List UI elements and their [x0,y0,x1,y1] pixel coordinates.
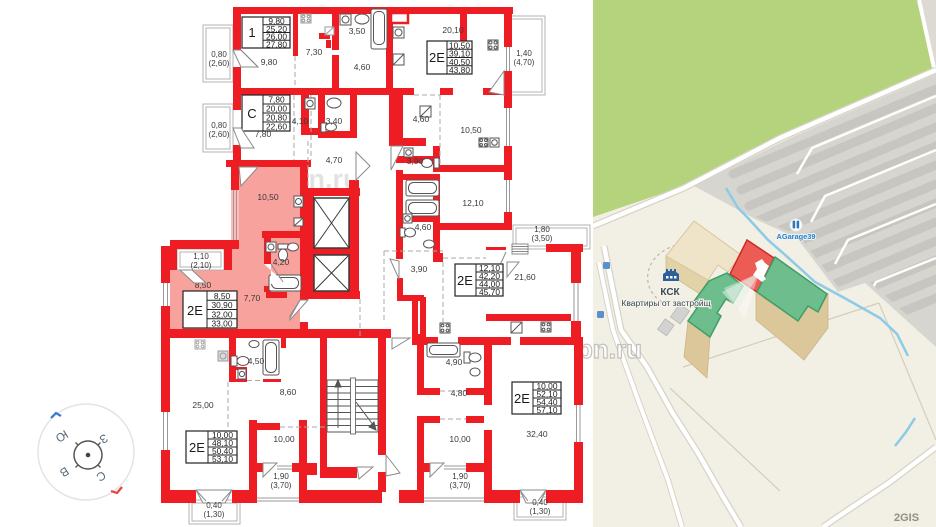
svg-text:4,90: 4,90 [446,357,463,367]
svg-text:7,70: 7,70 [244,293,261,303]
svg-text:43,80: 43,80 [449,65,470,75]
svg-text:10,50: 10,50 [460,125,482,135]
svg-text:2GIS: 2GIS [894,512,919,524]
svg-text:12,10: 12,10 [462,198,484,208]
svg-text:0,80: 0,80 [211,50,227,59]
svg-text:4,70: 4,70 [326,155,343,165]
svg-text:КСК: КСК [660,287,680,298]
svg-text:(3,50): (3,50) [532,234,553,243]
svg-text:2Е: 2Е [514,391,530,406]
svg-text:1,80: 1,80 [534,225,550,234]
svg-text:27,80: 27,80 [266,39,287,49]
svg-text:2Е: 2Е [189,440,205,455]
svg-text:4,10: 4,10 [292,116,309,126]
svg-text:(3,70): (3,70) [450,481,471,490]
svg-text:4,20: 4,20 [273,257,290,267]
svg-text:4,60: 4,60 [354,62,371,72]
svg-text:10,00: 10,00 [273,434,295,444]
svg-text:1,90: 1,90 [273,472,289,481]
svg-text:(1,30): (1,30) [204,510,225,519]
svg-text:3,90: 3,90 [411,264,428,274]
svg-text:53,10: 53,10 [212,454,233,464]
svg-text:0,80: 0,80 [211,121,227,130]
svg-text:10,50: 10,50 [257,192,279,202]
svg-text:25,00: 25,00 [192,400,214,410]
svg-text:7,30: 7,30 [306,47,323,57]
svg-text:4,60: 4,60 [415,222,432,232]
svg-text:(2,60): (2,60) [209,59,230,68]
svg-text:2Е: 2Е [429,50,445,65]
svg-text:4,60: 4,60 [413,114,430,124]
svg-text:45,70: 45,70 [479,287,500,297]
svg-text:1,10: 1,10 [193,252,209,261]
svg-text:3,50: 3,50 [349,26,366,36]
svg-text:3,40: 3,40 [326,116,343,126]
svg-text:7,80: 7,80 [255,129,272,139]
svg-text:4,80: 4,80 [451,388,468,398]
svg-text:(2,60): (2,60) [209,130,230,139]
svg-text:2Е: 2Е [187,303,203,318]
svg-text:8,60: 8,60 [280,387,297,397]
svg-text:3,90: 3,90 [407,156,424,166]
svg-text:32,40: 32,40 [526,429,548,439]
svg-text:(4,70): (4,70) [514,58,535,67]
svg-text:4,50: 4,50 [248,356,265,366]
svg-text:(3,70): (3,70) [271,481,292,490]
svg-text:(1,30): (1,30) [530,507,551,516]
svg-text:pn.ru: pn.ru [577,334,642,364]
svg-text:1,40: 1,40 [516,49,532,58]
svg-text:9,80: 9,80 [261,57,278,67]
svg-text:1,90: 1,90 [452,472,468,481]
svg-text:(2,10): (2,10) [191,261,212,270]
svg-text:2Е: 2Е [457,273,473,288]
svg-text:57,10: 57,10 [537,405,558,415]
svg-text:10,00: 10,00 [449,434,471,444]
svg-text:20,10: 20,10 [442,25,464,35]
svg-text:0,40: 0,40 [206,501,222,510]
svg-text:33,00: 33,00 [212,319,233,329]
svg-text:С: С [247,106,256,121]
svg-text:Квартиры от застройщ: Квартиры от застройщ [621,298,710,308]
svg-text:0,40: 0,40 [532,498,548,507]
svg-text:AGarage39: AGarage39 [776,232,815,241]
svg-text:21,60: 21,60 [514,272,536,282]
svg-text:1: 1 [248,25,255,40]
